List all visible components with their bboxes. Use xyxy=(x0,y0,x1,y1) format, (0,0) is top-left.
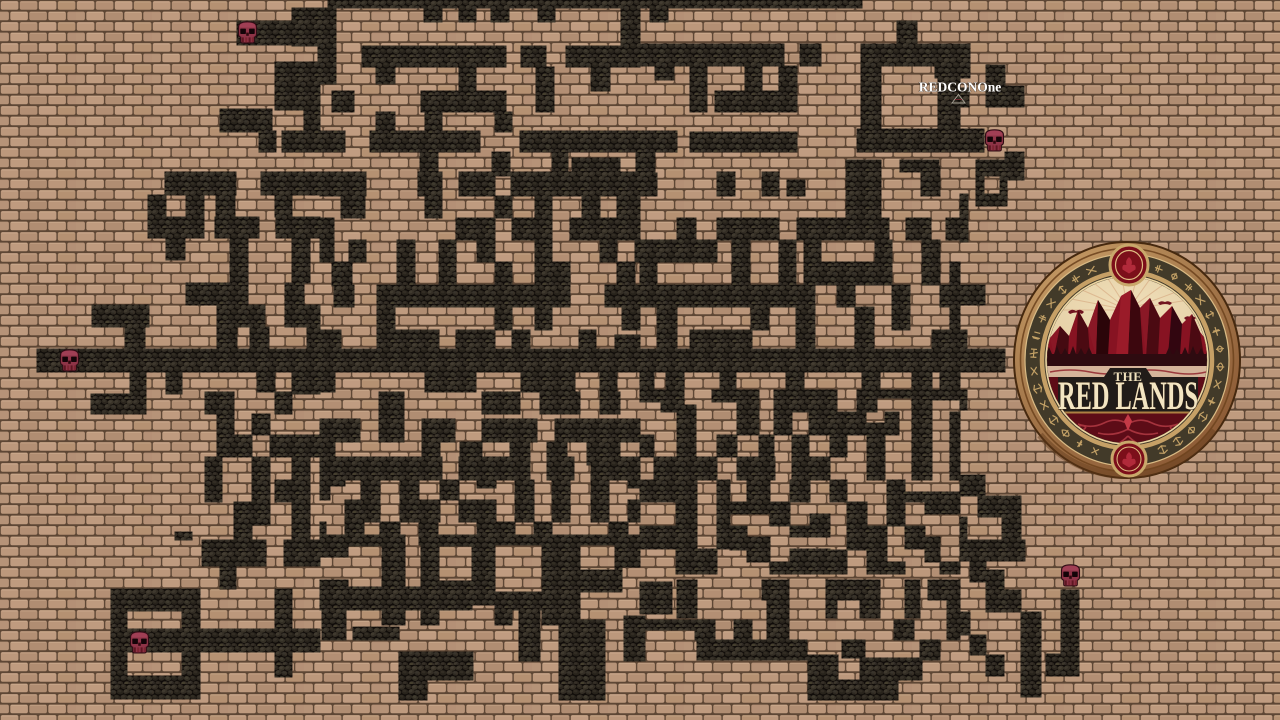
svg-text:RED LANDS: RED LANDS xyxy=(1058,373,1198,418)
svg-text:REDCONOne: REDCONOne xyxy=(919,80,1002,95)
